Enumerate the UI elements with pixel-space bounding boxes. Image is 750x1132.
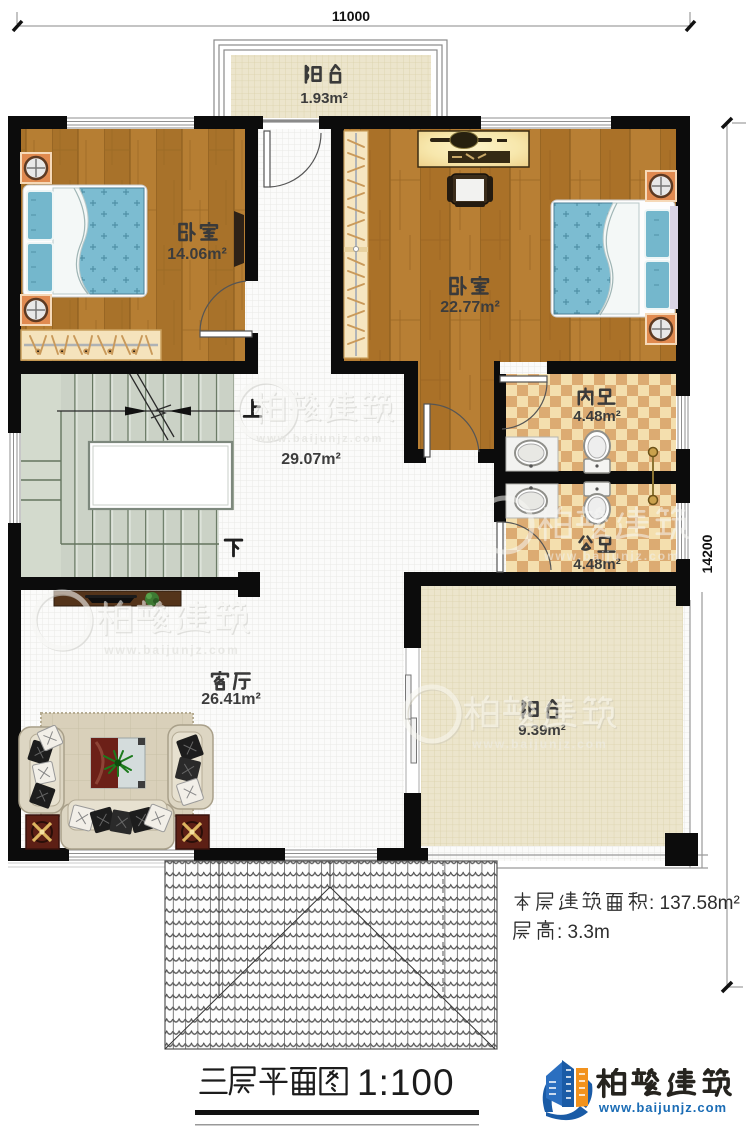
svg-text:1.93m²: 1.93m²: [300, 90, 348, 107]
svg-text:www.baijunjz.com: www.baijunjz.com: [543, 549, 680, 563]
svg-text:www.baijunjz.com: www.baijunjz.com: [256, 433, 384, 445]
svg-text:26.41m²: 26.41m²: [201, 691, 261, 708]
svg-text:22.77m²: 22.77m²: [440, 299, 500, 316]
svg-text:www.baijunjz.com: www.baijunjz.com: [103, 643, 240, 657]
svg-text:14.06m²: 14.06m²: [167, 246, 227, 263]
svg-text:www.baijunjz.com: www.baijunjz.com: [598, 1100, 727, 1115]
svg-text:11000: 11000: [332, 8, 370, 24]
svg-text:4.48m²: 4.48m²: [573, 408, 621, 425]
svg-text:www.baijunjz.com: www.baijunjz.com: [471, 737, 608, 751]
svg-text:: 137.58m²: : 137.58m²: [649, 893, 740, 914]
svg-text:14200: 14200: [699, 534, 715, 573]
svg-text:: 3.3m: : 3.3m: [557, 922, 610, 943]
svg-text:29.07m²: 29.07m²: [281, 451, 341, 468]
svg-text:1:100: 1:100: [357, 1062, 455, 1103]
